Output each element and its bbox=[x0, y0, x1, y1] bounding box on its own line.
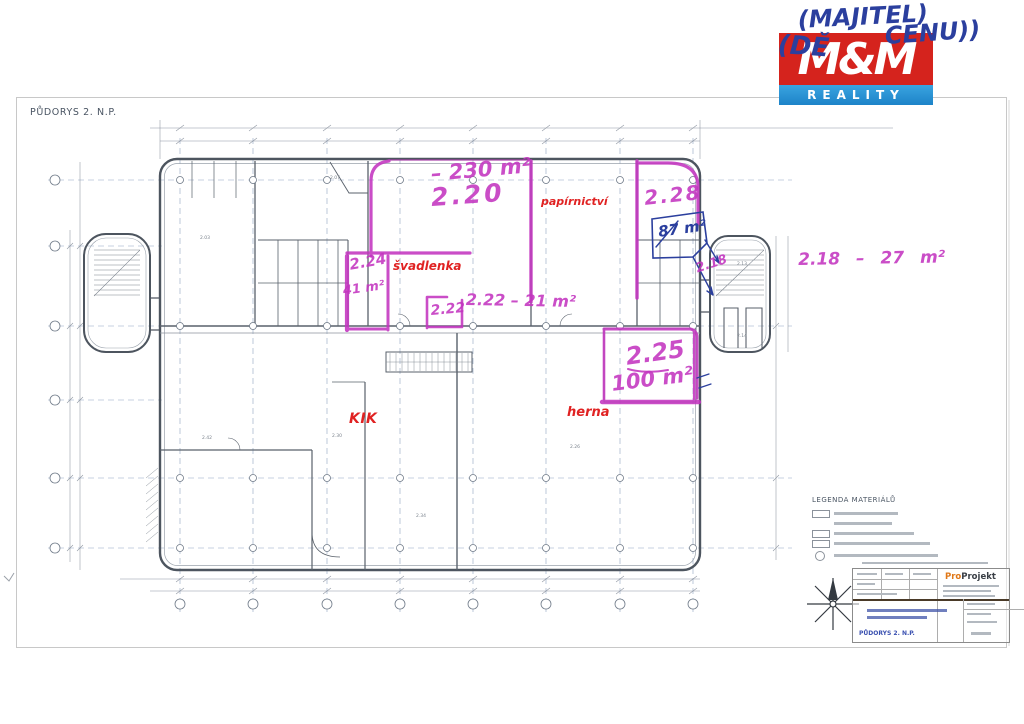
brand-projekt: Projekt bbox=[961, 572, 996, 582]
legend-item-text bbox=[834, 522, 892, 525]
room-number: 2.13 bbox=[737, 262, 747, 267]
material-legend: LEGENDA MATERIÁLŮ bbox=[812, 496, 992, 566]
legend-swatch bbox=[812, 530, 830, 538]
label-herna: herna bbox=[567, 405, 610, 420]
margin-pen-mark bbox=[4, 573, 14, 581]
title-block: ProProjekt PŮDORYS 2. N.P. bbox=[852, 568, 1010, 643]
title-block-rule bbox=[853, 599, 1009, 601]
proprojekt-brand: ProProjekt bbox=[945, 572, 996, 582]
title-block-drawing-title: PŮDORYS 2. N.P. bbox=[859, 630, 915, 637]
marker-room-220: 2.20 bbox=[430, 178, 506, 212]
scanned-floorplan-page: PŮDORYS 2. N.P. M&M REALITY (MAJITEL) (D… bbox=[0, 0, 1024, 724]
room-number: 2.07 bbox=[330, 176, 340, 181]
legend-circle-symbol bbox=[815, 551, 825, 561]
legend-item-text bbox=[834, 512, 898, 515]
room-number: 2.42 bbox=[202, 436, 212, 441]
brand-pro: Pro bbox=[945, 572, 961, 582]
legend-title: LEGENDA MATERIÁLŮ bbox=[812, 496, 992, 504]
marker-room-222: 2.22 bbox=[430, 300, 466, 319]
marker-note-222: 2.22 – 21 m² bbox=[466, 290, 576, 311]
marker-note-218: 2.18 – 27 m² bbox=[798, 247, 945, 270]
legend-item-text bbox=[834, 532, 914, 535]
room-number: 2.14 bbox=[737, 334, 747, 339]
label-svadlenka: švadlenka bbox=[393, 259, 462, 273]
room-number: 2.30 bbox=[332, 434, 342, 439]
label-papirnictvi: papírnictví bbox=[541, 195, 608, 208]
revision-note-text bbox=[862, 562, 988, 564]
legend-item-text bbox=[834, 542, 930, 545]
handwritten-project-name bbox=[867, 609, 947, 612]
room-number: 2.03 bbox=[200, 236, 210, 241]
legend-swatch bbox=[812, 510, 830, 518]
page-title: PŮDORYS 2. N.P. bbox=[30, 107, 117, 118]
room-number: 2.26 bbox=[570, 445, 580, 450]
label-kik: KIK bbox=[349, 411, 377, 427]
legend-swatch bbox=[812, 540, 830, 548]
legend-item-text bbox=[834, 554, 938, 557]
logo-bottom-text: REALITY bbox=[779, 85, 933, 105]
handwritten-project-address bbox=[867, 616, 927, 619]
room-number: 2.34 bbox=[416, 514, 426, 519]
pen-note-line2-left: (DĚ bbox=[777, 30, 830, 64]
